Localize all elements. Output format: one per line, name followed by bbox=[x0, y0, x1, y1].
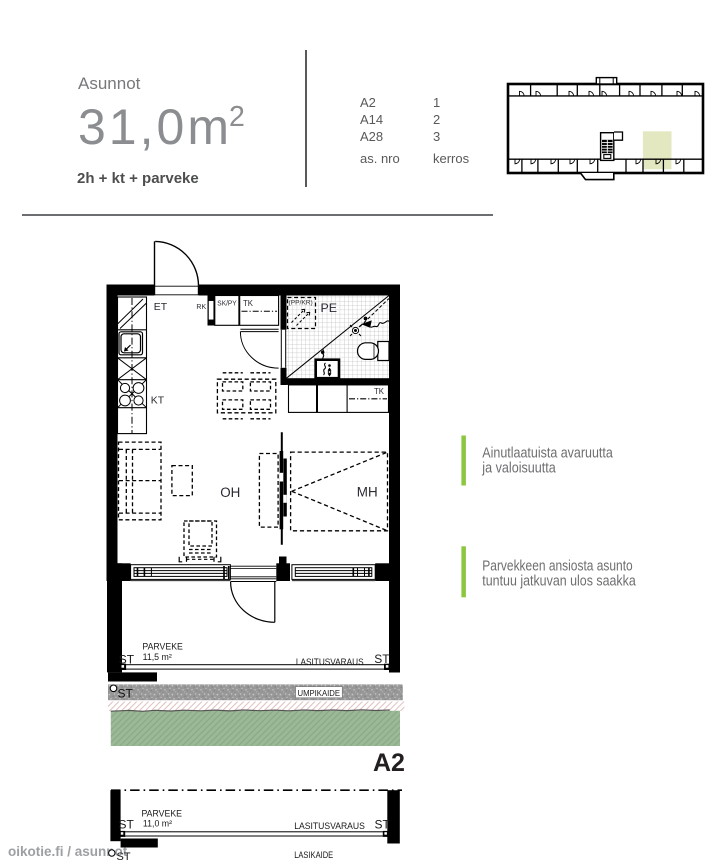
svg-text:RK: RK bbox=[196, 304, 206, 311]
svg-text:UMPIKAIDE: UMPIKAIDE bbox=[298, 688, 341, 698]
svg-text:11,0 m²: 11,0 m² bbox=[143, 819, 172, 829]
svg-text:ST: ST bbox=[375, 817, 391, 831]
svg-text:TK: TK bbox=[374, 387, 385, 396]
svg-text:ST: ST bbox=[118, 687, 134, 701]
svg-text:MH: MH bbox=[357, 485, 378, 500]
svg-text:ST: ST bbox=[374, 652, 390, 666]
svg-text:LASITUSVARAUS: LASITUSVARAUS bbox=[294, 821, 365, 831]
svg-text:ST: ST bbox=[119, 652, 135, 666]
svg-text:KT: KT bbox=[151, 396, 165, 407]
svg-text:PE: PE bbox=[321, 301, 338, 315]
svg-text:TK: TK bbox=[243, 299, 254, 308]
svg-text:SK/PY: SK/PY bbox=[217, 299, 236, 308]
svg-text:11,5 m²: 11,5 m² bbox=[143, 652, 172, 662]
svg-text:ST: ST bbox=[119, 818, 135, 832]
svg-text:OH: OH bbox=[220, 485, 240, 500]
svg-text:PARVEKE: PARVEKE bbox=[142, 808, 183, 818]
svg-text:LASITUSVARAUS: LASITUSVARAUS bbox=[296, 657, 364, 667]
svg-text:PARVEKE: PARVEKE bbox=[142, 642, 183, 652]
svg-text:Ainutlaatuista avaruutta: Ainutlaatuista avaruutta bbox=[482, 446, 613, 462]
svg-text:ST: ST bbox=[117, 851, 131, 863]
svg-text:ja valoisuutta: ja valoisuutta bbox=[481, 460, 556, 476]
svg-text:(PP/KR): (PP/KR) bbox=[289, 300, 313, 307]
svg-text:LASIKAIDE: LASIKAIDE bbox=[294, 850, 333, 860]
svg-text:A2: A2 bbox=[373, 749, 405, 777]
svg-text:ET: ET bbox=[154, 302, 168, 313]
svg-text:tuntuu jatkuvan ulos saakka: tuntuu jatkuvan ulos saakka bbox=[482, 573, 636, 589]
svg-text:Parvekkeen ansiosta asunto: Parvekkeen ansiosta asunto bbox=[482, 558, 632, 574]
